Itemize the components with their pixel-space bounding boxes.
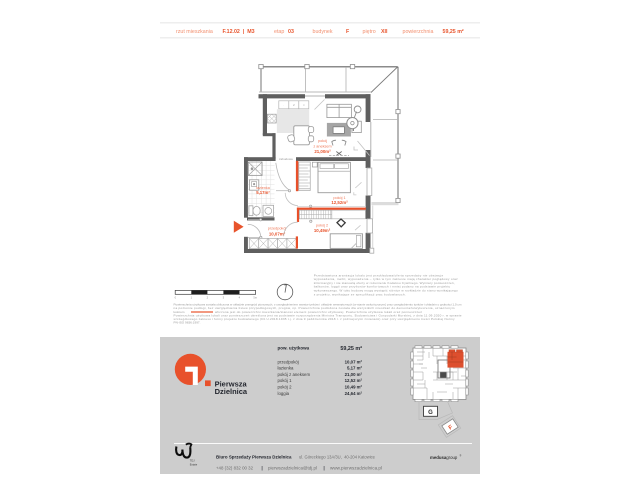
svg-text:pow. użytkowa: pow. użytkowa [278, 346, 310, 351]
svg-text:budynek: budynek [313, 29, 333, 35]
svg-text:pierwszadzielnica@tdj.pl: pierwszadzielnica@tdj.pl [268, 465, 317, 470]
svg-text:5,17m²: 5,17m² [256, 190, 270, 195]
svg-text:24,64 m²: 24,64 m² [345, 391, 363, 396]
svg-text:pokój 1: pokój 1 [278, 378, 293, 383]
svg-text:59,25 m²: 59,25 m² [443, 29, 464, 35]
svg-text:12,52 m²: 12,52 m² [345, 378, 363, 383]
svg-text:piętro: piętro [363, 29, 376, 35]
svg-text:pokój: pokój [318, 139, 327, 143]
svg-text:®: ® [460, 455, 462, 458]
svg-text:PN-ISO 9836:1997.: PN-ISO 9836:1997. [174, 321, 201, 325]
svg-text:+48 (32) 832 00 32: +48 (32) 832 00 32 [216, 465, 254, 470]
svg-text:03: 03 [288, 29, 294, 35]
svg-text:5m: 5m [253, 295, 257, 299]
svg-text:21,00m²: 21,00m² [314, 149, 331, 154]
svg-text:przedpokój: przedpokój [278, 359, 299, 364]
svg-text:12,52m²: 12,52m² [331, 200, 348, 205]
svg-text:ul. Góreckiego 13A/3U, 40-204: ul. Góreckiego 13A/3U, 40-204 Katowice [299, 455, 376, 460]
svg-text:Dzielnica: Dzielnica [215, 387, 248, 396]
svg-text:szczegółowego zakresu i formy: szczegółowego zakresu i formy projektu b… [174, 317, 455, 321]
svg-text:z aneksem: z aneksem [313, 144, 331, 148]
svg-text:powierzchnia: powierzchnia [403, 29, 434, 35]
svg-text:pokój 2: pokój 2 [278, 385, 293, 390]
svg-text:medusagroup: medusagroup [430, 455, 458, 460]
svg-text:10,07m²: 10,07m² [269, 232, 286, 237]
svg-text:59,25 m²: 59,25 m² [340, 346, 362, 352]
svg-text:zabudowa: zabudowa [279, 157, 293, 161]
svg-text:pokój z aneksem: pokój z aneksem [278, 372, 311, 377]
svg-text:Biuro Sprzedaży Pierwsza Dziel: Biuro Sprzedaży Pierwsza Dzielnica [216, 455, 292, 460]
svg-text:TDJ: TDJ [190, 459, 195, 463]
svg-text:XII: XII [381, 29, 388, 35]
svg-text:G: G [428, 410, 433, 416]
svg-text:etap: etap [274, 29, 284, 35]
svg-text:przedpokój: przedpokój [268, 227, 287, 231]
svg-text:|: | [262, 465, 263, 470]
svg-text:5,17 m²: 5,17 m² [347, 366, 363, 371]
svg-text:21,00 m²: 21,00 m² [345, 372, 363, 377]
svg-text:z projektu, wynikające ze spec: z projektu, wynikające ze specyfikacji p… [314, 292, 406, 296]
svg-text:www.pierwszadzielnica.pl: www.pierwszadzielnica.pl [330, 465, 382, 470]
svg-text:rzut mieszkania: rzut mieszkania [176, 29, 213, 35]
svg-text:Estate: Estate [190, 463, 198, 467]
svg-text:10,49m²: 10,49m² [314, 228, 331, 233]
svg-text:10,49 m²: 10,49 m² [345, 385, 363, 390]
svg-text:loggia: loggia [278, 391, 290, 396]
svg-text:×: × [303, 103, 305, 107]
svg-text:10,07 m²: 10,07 m² [345, 359, 363, 364]
svg-text:F.12.02 | M3: F.12.02 | M3 [223, 29, 255, 35]
svg-text:·: · [283, 103, 284, 107]
svg-text:|: | [324, 465, 325, 470]
svg-text:łazienka: łazienka [278, 366, 295, 371]
